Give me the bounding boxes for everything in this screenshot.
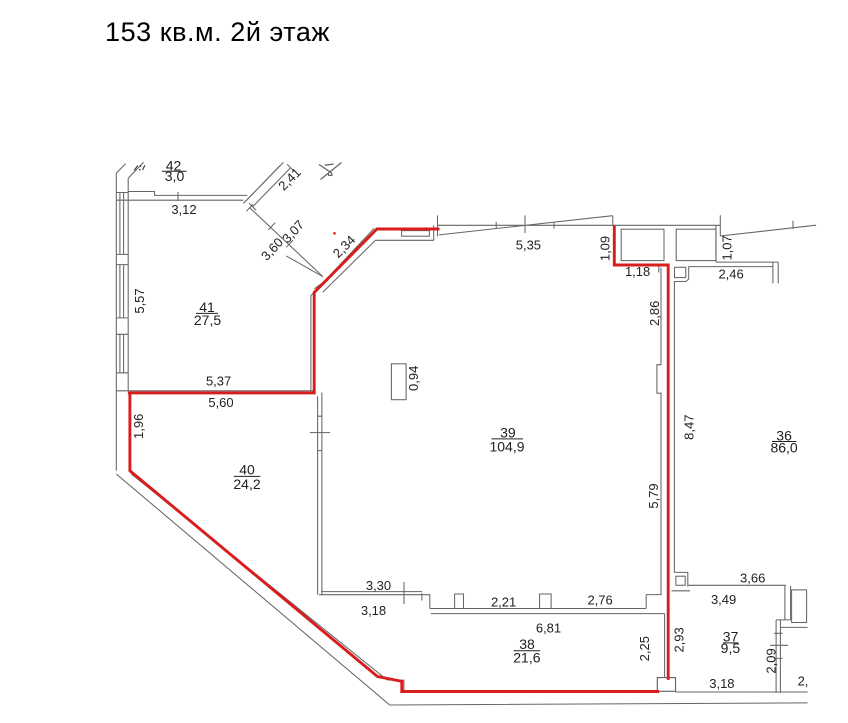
svg-text:24,2: 24,2 — [233, 476, 260, 492]
svg-text:153 кв.м. 2й этаж: 153 кв.м. 2й этаж — [105, 17, 330, 47]
svg-text:3,0: 3,0 — [165, 168, 185, 184]
svg-text:5,57: 5,57 — [132, 288, 147, 313]
svg-text:2,25: 2,25 — [637, 636, 652, 661]
svg-text:2,21: 2,21 — [491, 595, 516, 610]
svg-text:2,: 2, — [798, 674, 809, 689]
svg-text:21,6: 21,6 — [513, 650, 540, 666]
svg-text:3,49: 3,49 — [711, 592, 736, 607]
svg-text:1,96: 1,96 — [131, 414, 146, 439]
svg-text:1,07: 1,07 — [719, 235, 734, 260]
svg-text:27,5: 27,5 — [194, 312, 221, 328]
svg-text:5,60: 5,60 — [208, 395, 233, 410]
svg-text:104,9: 104,9 — [489, 439, 524, 455]
svg-text:3,18: 3,18 — [709, 676, 734, 691]
svg-text:2,46: 2,46 — [718, 267, 743, 282]
svg-text:1,09: 1,09 — [598, 236, 613, 261]
svg-text:3,12: 3,12 — [171, 202, 196, 217]
svg-text:5,79: 5,79 — [646, 483, 661, 508]
svg-text:2,93: 2,93 — [672, 627, 687, 652]
svg-text:3,66: 3,66 — [740, 570, 765, 585]
svg-text:5,35: 5,35 — [516, 238, 541, 253]
svg-text:1,18: 1,18 — [625, 264, 650, 279]
svg-text:5,37: 5,37 — [206, 373, 231, 388]
svg-text:8,47: 8,47 — [682, 415, 697, 440]
svg-text:3,18: 3,18 — [361, 603, 386, 618]
svg-text:2,76: 2,76 — [587, 593, 612, 608]
svg-text:0,94: 0,94 — [406, 366, 421, 391]
svg-text:86,0: 86,0 — [770, 440, 797, 456]
svg-text:3,30: 3,30 — [366, 578, 391, 593]
svg-text:6,81: 6,81 — [536, 621, 561, 636]
svg-text:2,09: 2,09 — [763, 648, 778, 673]
svg-text:9,5: 9,5 — [721, 640, 741, 656]
svg-text:2,86: 2,86 — [647, 301, 662, 326]
